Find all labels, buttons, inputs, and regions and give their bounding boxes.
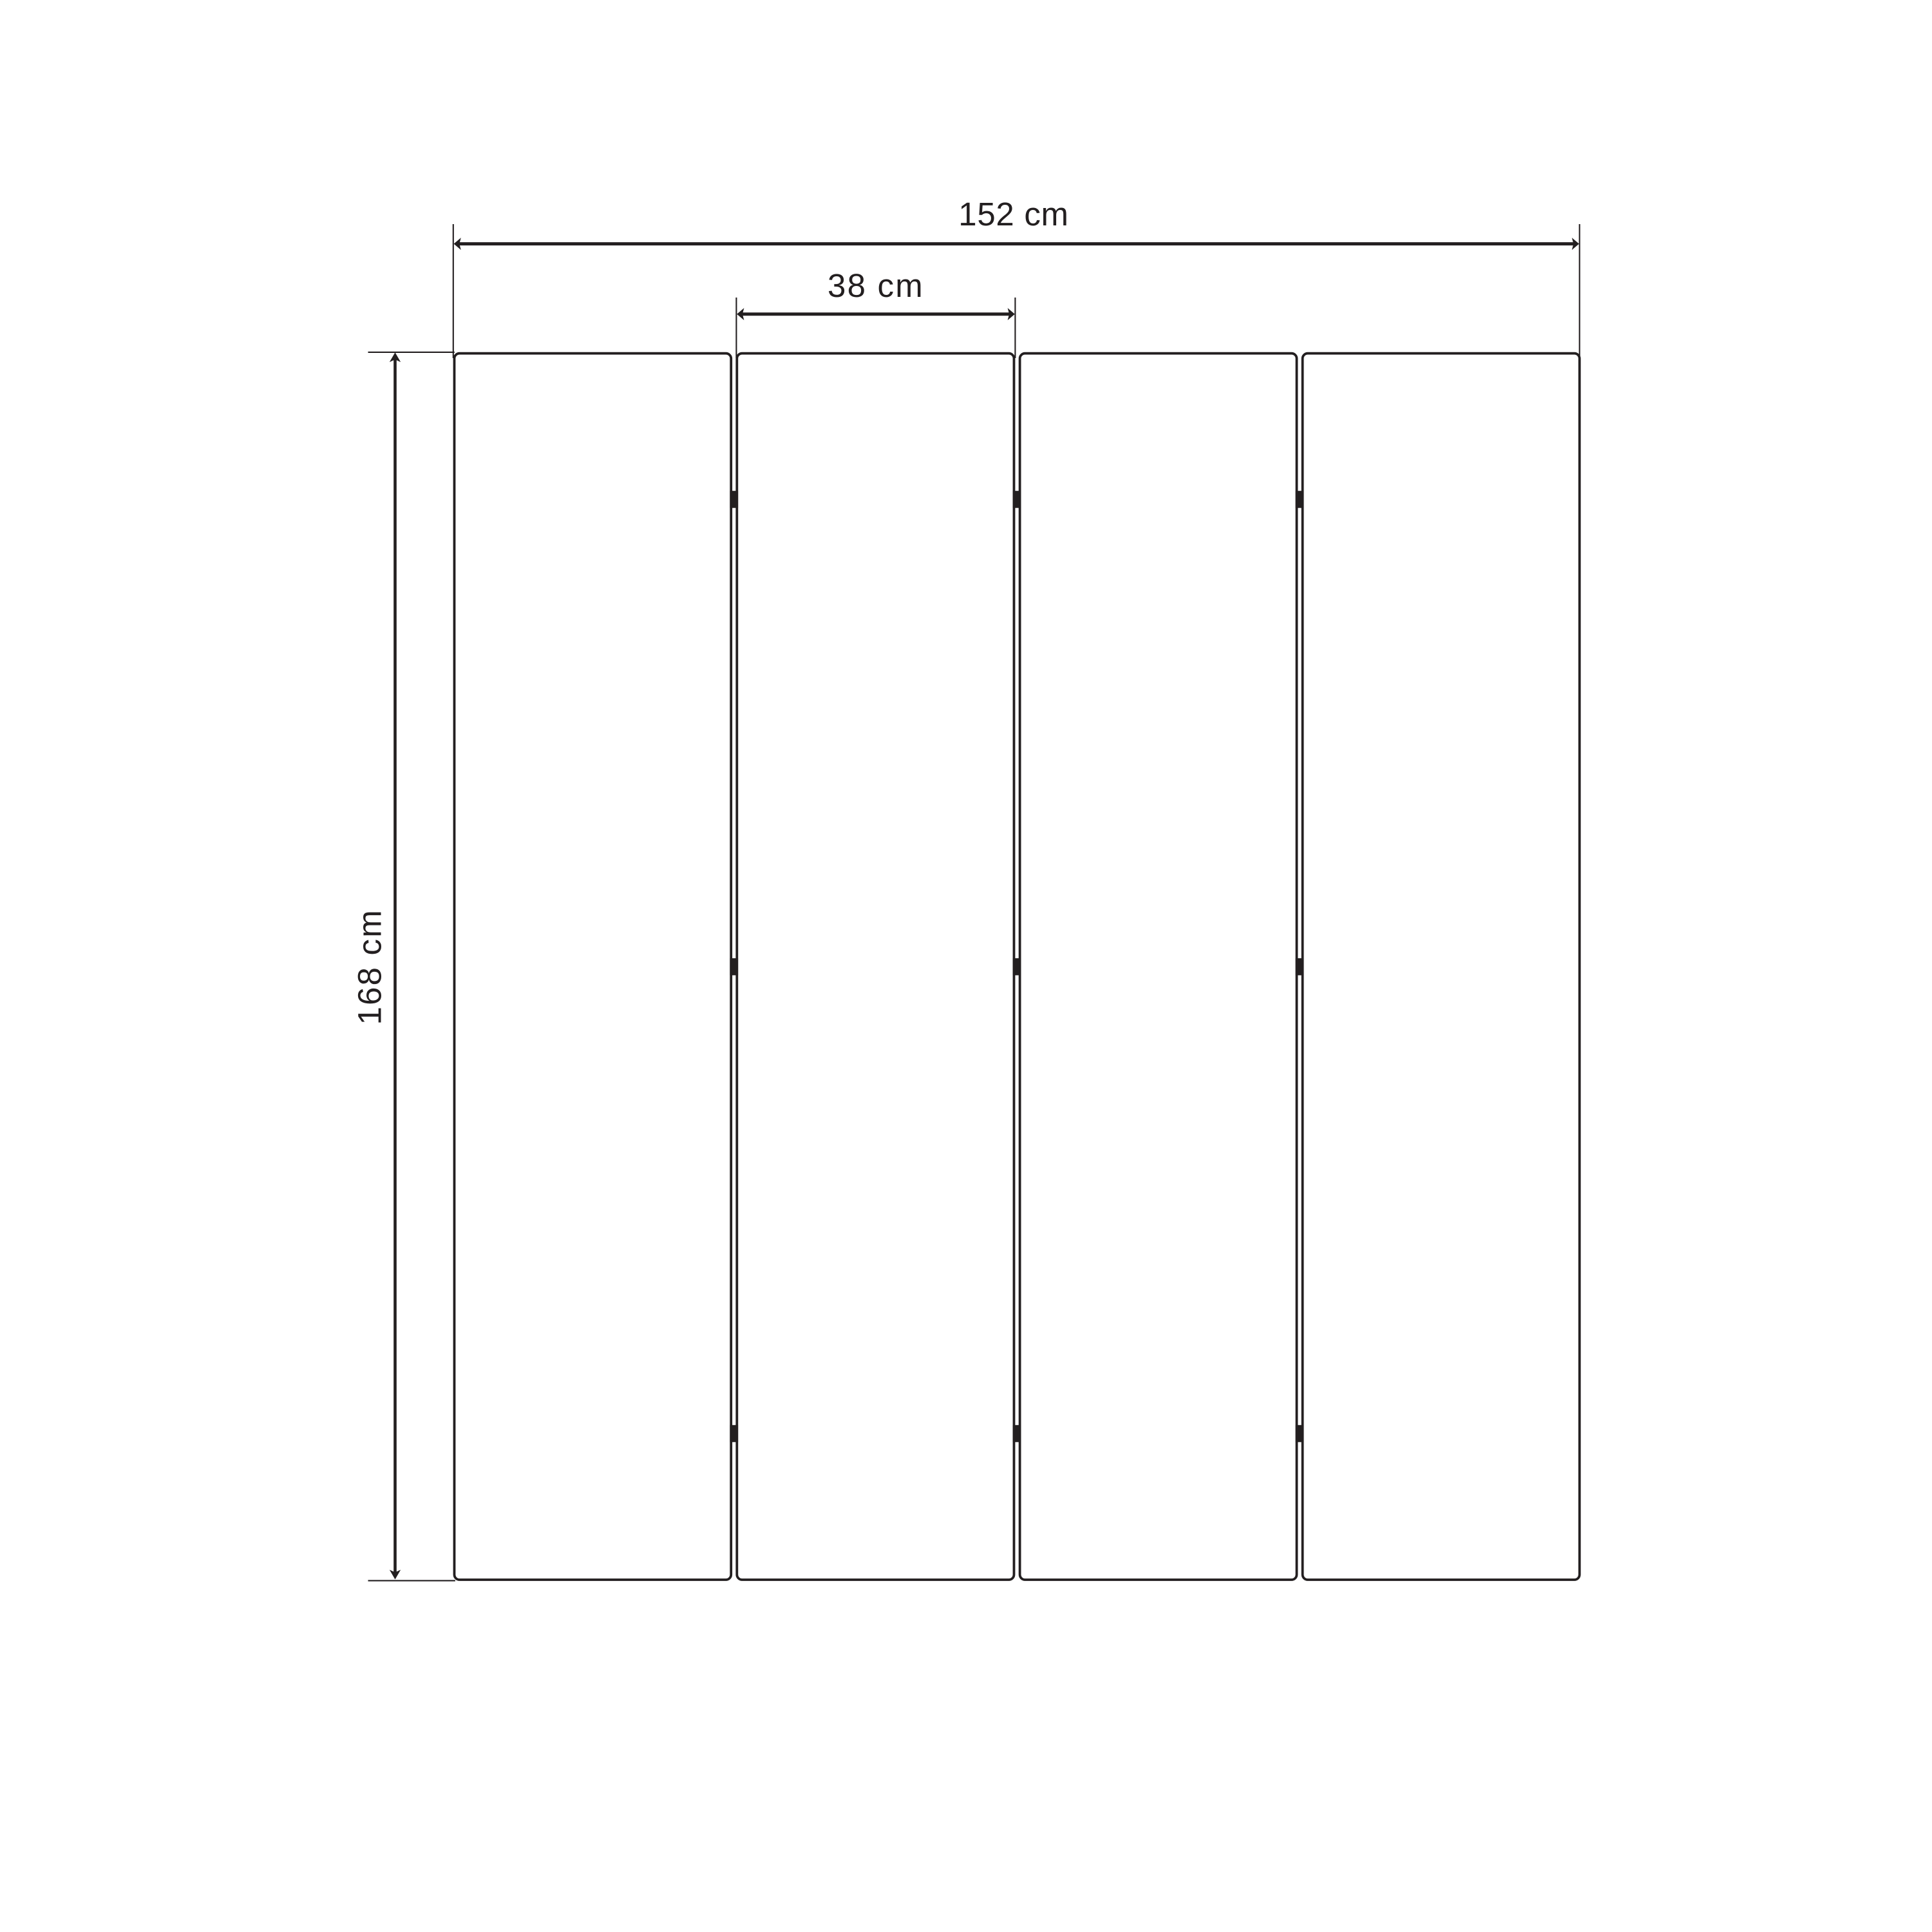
svg-text:152 cm: 152 cm — [958, 196, 1068, 232]
svg-text:38 cm: 38 cm — [828, 267, 924, 304]
svg-text:168 cm: 168 cm — [352, 909, 388, 1025]
